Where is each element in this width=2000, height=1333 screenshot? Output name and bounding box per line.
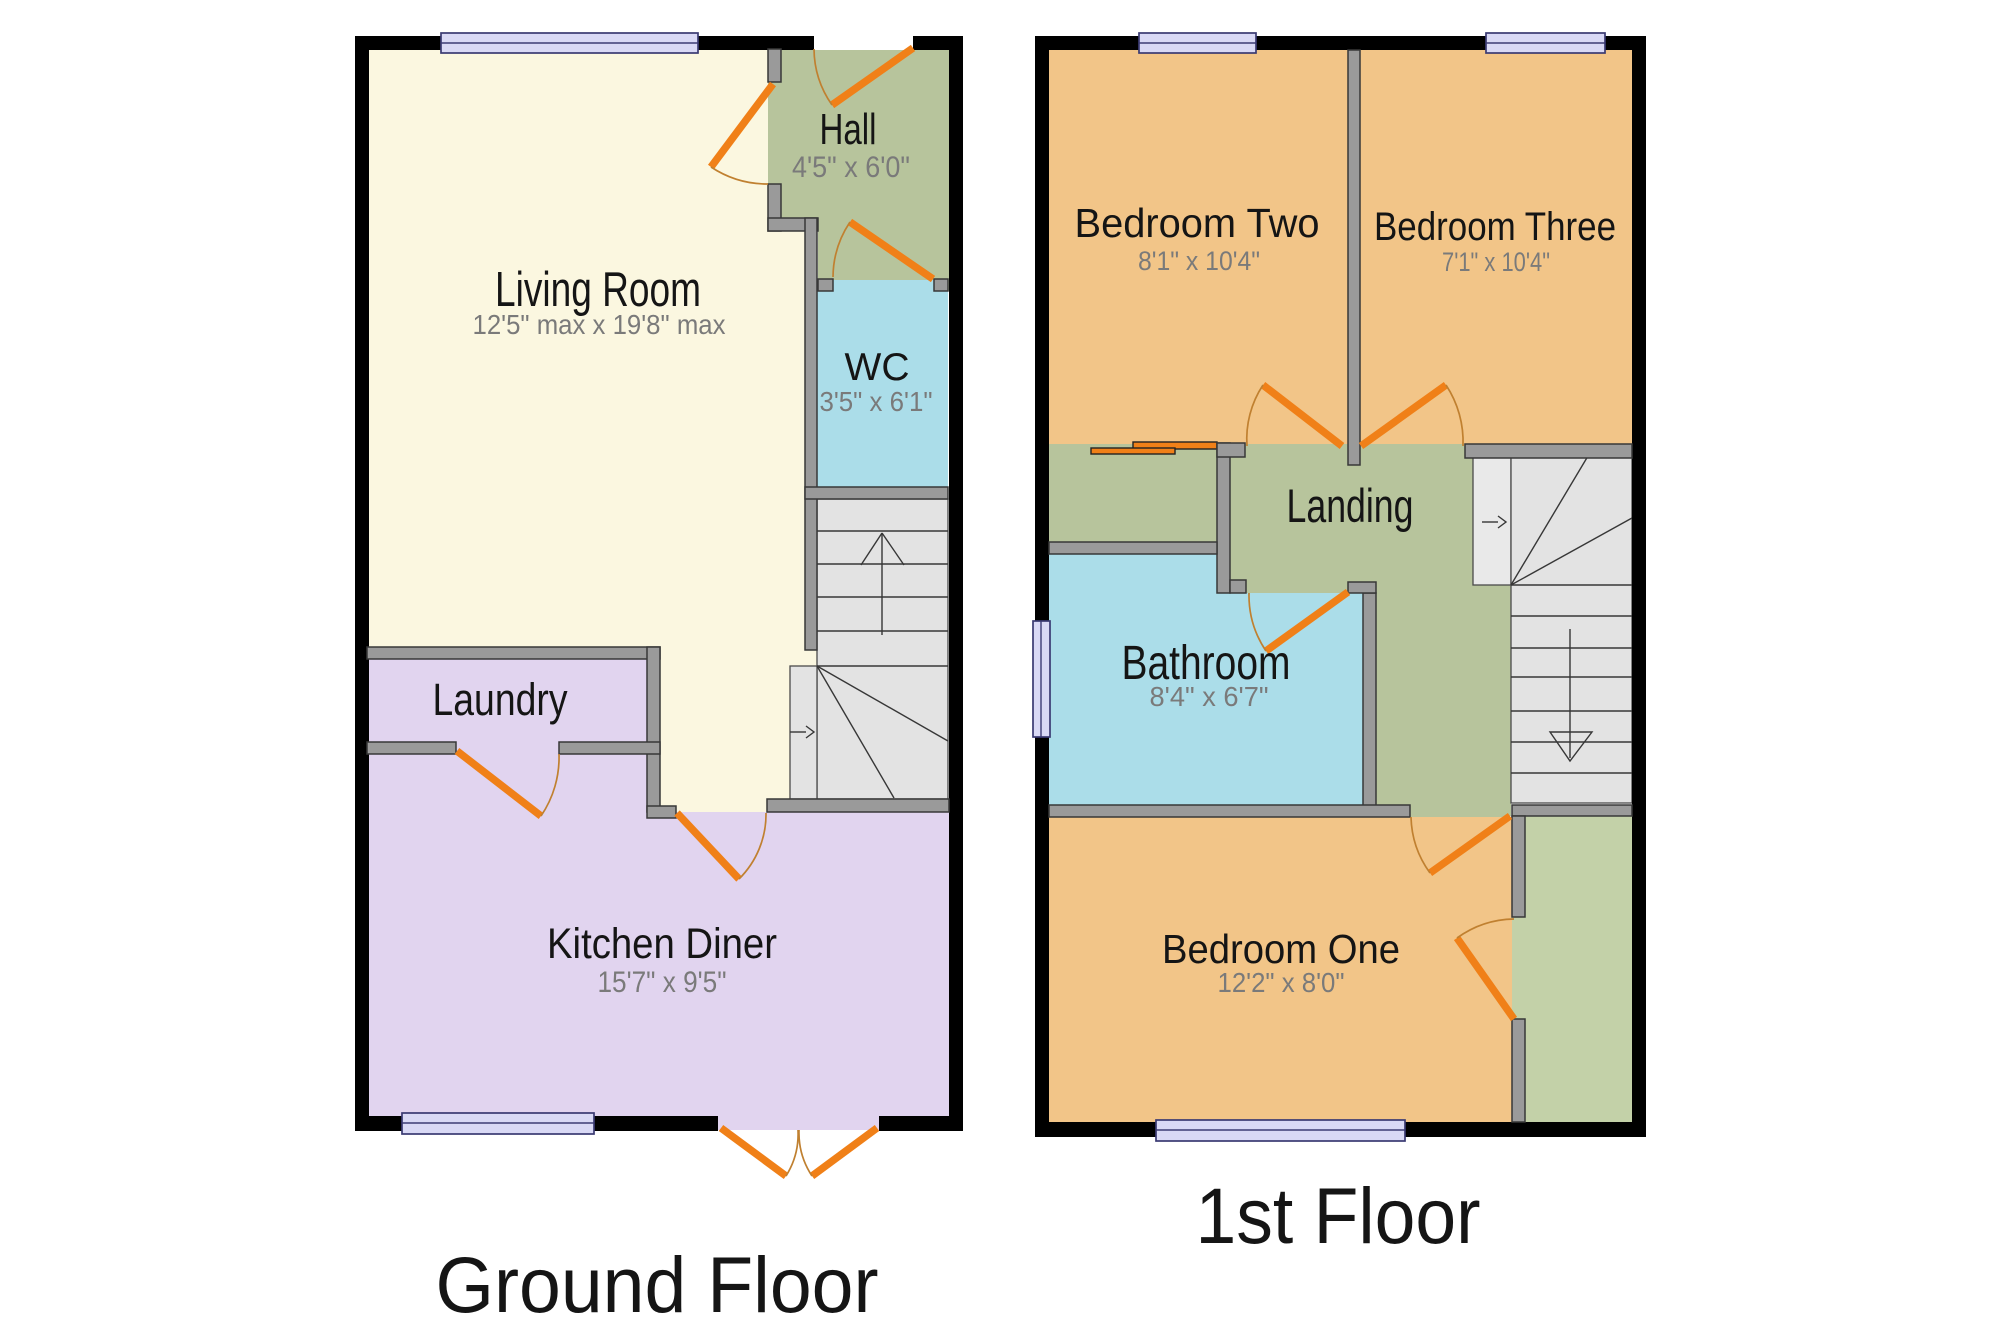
- svg-text:Laundry: Laundry: [433, 674, 568, 725]
- svg-text:1st Floor: 1st Floor: [1196, 1171, 1481, 1260]
- svg-text:3'5" x 6'1": 3'5" x 6'1": [820, 386, 933, 417]
- svg-text:4'5" x 6'0": 4'5" x 6'0": [792, 151, 910, 184]
- svg-text:12'2" x 8'0": 12'2" x 8'0": [1218, 967, 1345, 998]
- svg-text:Ground Floor: Ground Floor: [436, 1240, 879, 1329]
- svg-text:12'5" max x 19'8" max: 12'5" max x 19'8" max: [473, 309, 726, 340]
- svg-text:Hall: Hall: [820, 105, 877, 154]
- svg-text:8'4" x 6'7": 8'4" x 6'7": [1150, 681, 1269, 712]
- svg-text:Bedroom Three: Bedroom Three: [1374, 205, 1616, 249]
- svg-text:8'1" x 10'4": 8'1" x 10'4": [1138, 246, 1260, 276]
- svg-text:WC: WC: [845, 346, 910, 389]
- svg-text:Bedroom One: Bedroom One: [1162, 926, 1400, 972]
- svg-text:Bedroom Two: Bedroom Two: [1075, 200, 1320, 246]
- svg-text:15'7" x 9'5": 15'7" x 9'5": [598, 966, 727, 999]
- svg-text:7'1" x 10'4": 7'1" x 10'4": [1442, 247, 1550, 277]
- svg-text:Kitchen Diner: Kitchen Diner: [547, 920, 777, 968]
- svg-text:Landing: Landing: [1287, 479, 1414, 532]
